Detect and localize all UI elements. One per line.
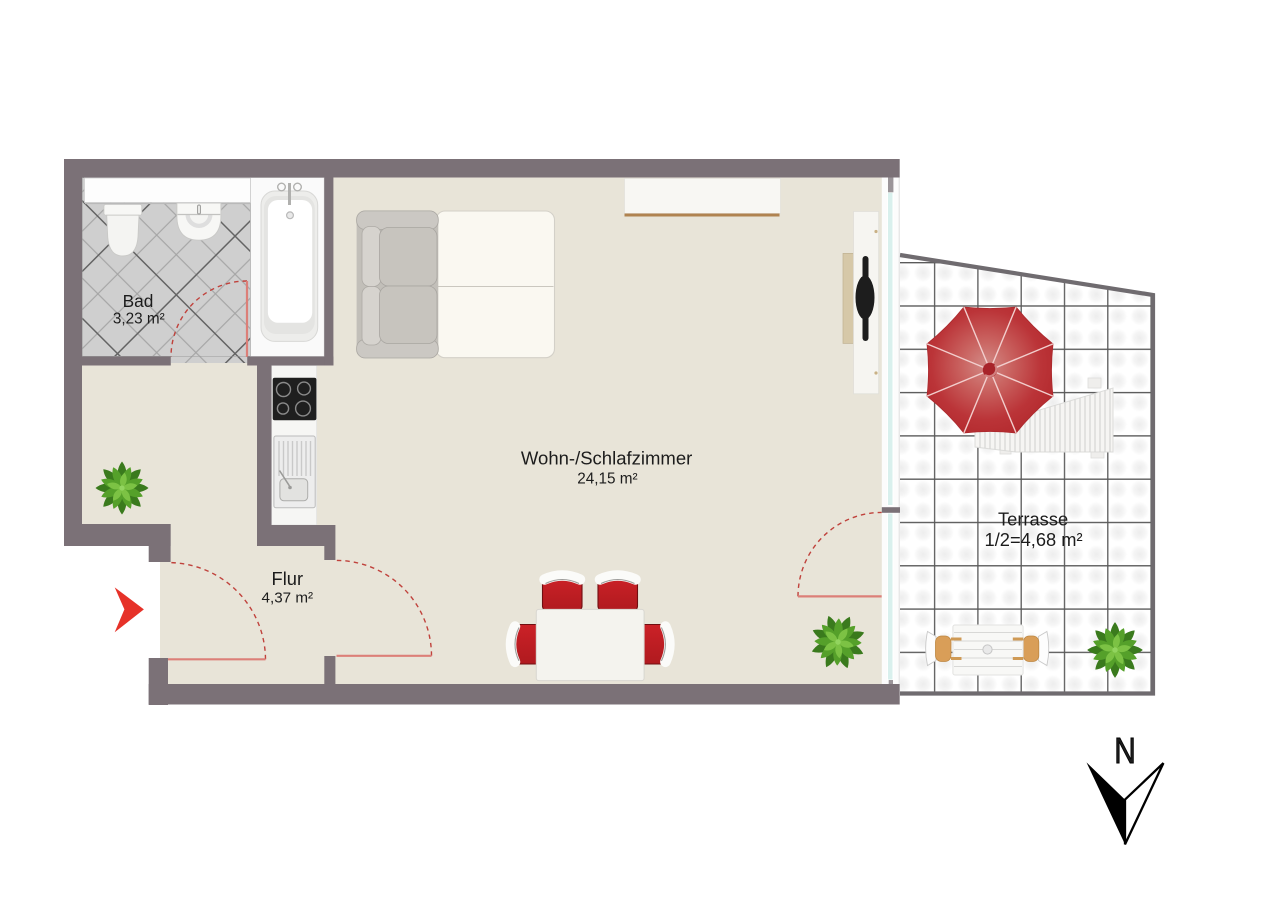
- svg-text:Wohn-/Schlafzimmer: Wohn-/Schlafzimmer: [521, 447, 692, 468]
- svg-text:N: N: [1114, 732, 1136, 772]
- svg-text:4,37 m²: 4,37 m²: [262, 590, 314, 607]
- svg-text:3,23 m²: 3,23 m²: [113, 311, 165, 328]
- svg-text:Flur: Flur: [272, 568, 303, 589]
- svg-text:24,15 m²: 24,15 m²: [577, 471, 637, 488]
- svg-text:1/2=4,68 m²: 1/2=4,68 m²: [985, 529, 1083, 550]
- svg-text:Bad: Bad: [123, 291, 154, 311]
- svg-text:Terrasse: Terrasse: [998, 508, 1068, 529]
